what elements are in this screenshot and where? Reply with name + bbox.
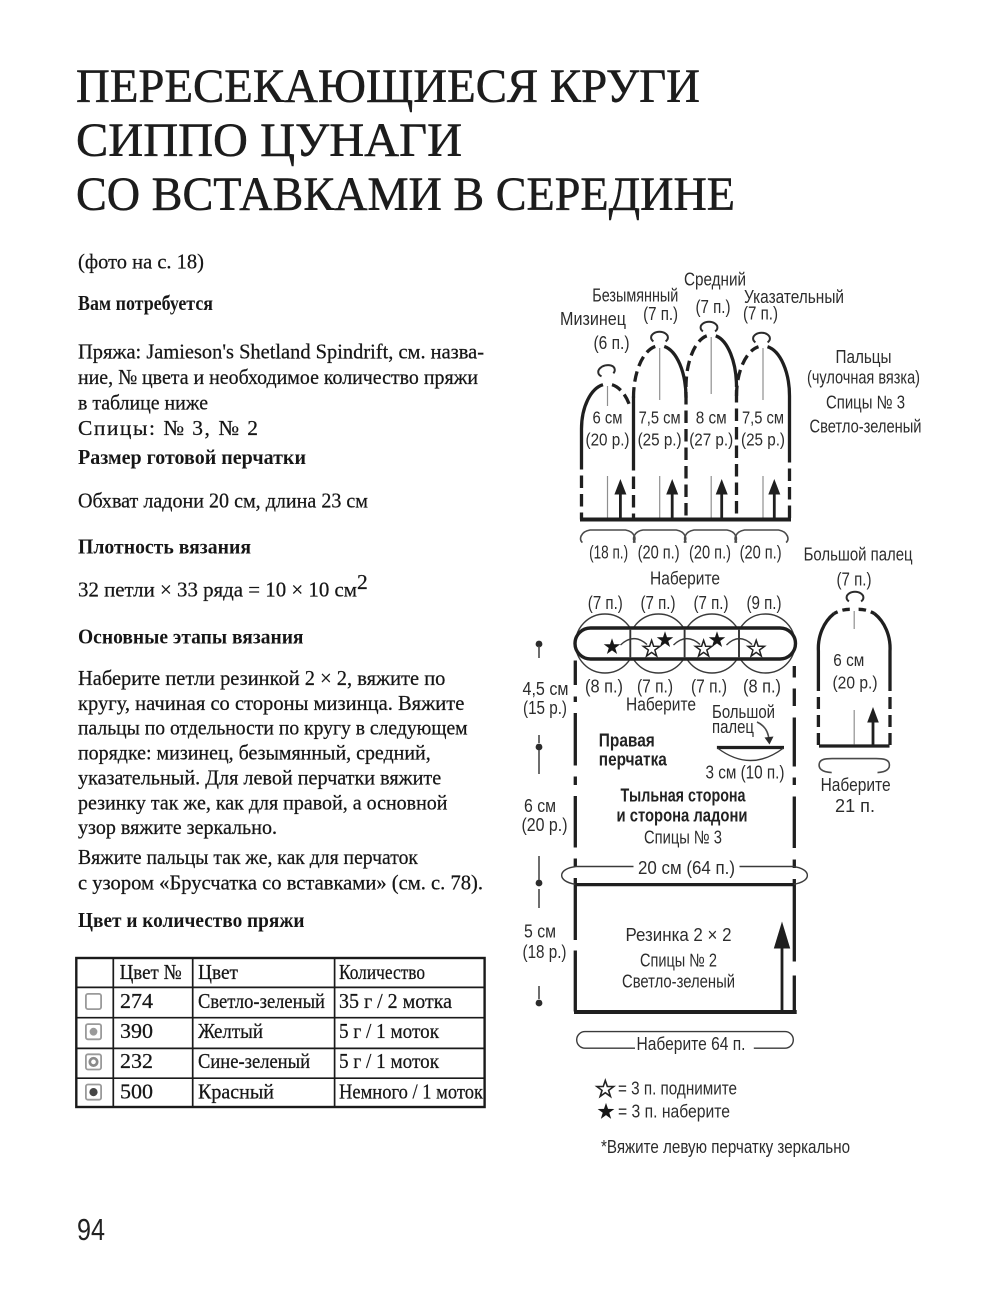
svg-text:(25 р.): (25 р.) — [741, 430, 785, 450]
svg-text:7,5 см: 7,5 см — [742, 408, 784, 428]
svg-text:Большой палец: Большой палец — [804, 544, 913, 565]
svg-text:(20 р.): (20 р.) — [833, 673, 878, 693]
svg-text:Желтый: Желтый — [198, 1019, 263, 1043]
svg-text:Пальцы: Пальцы — [836, 346, 892, 367]
svg-text:7,5 см: 7,5 см — [639, 408, 681, 428]
svg-text:94: 94 — [77, 1212, 105, 1247]
svg-text:6 см: 6 см — [833, 650, 864, 670]
svg-text:указательный. Для левой перчат: указательный. Для левой перчатки вяжите — [78, 765, 441, 789]
svg-text:(20 р.): (20 р.) — [522, 814, 568, 835]
svg-text:перчатка: перчатка — [599, 749, 668, 770]
svg-text:Светло-зеленый: Светло-зеленый — [810, 416, 922, 437]
svg-text:500: 500 — [120, 1079, 153, 1103]
svg-text:Резинка 2 × 2: Резинка 2 × 2 — [626, 924, 732, 945]
svg-text:Спицы № 3: Спицы № 3 — [644, 827, 722, 848]
svg-text:Вам потребуется: Вам потребуется — [78, 291, 213, 315]
svg-text:пальцы по отдельности по кругу: пальцы по отдельности по кругу в следующ… — [78, 716, 468, 740]
svg-text:(8 п.): (8 п.) — [585, 676, 623, 697]
svg-text:палец: палец — [712, 716, 754, 737]
svg-text:Плотность вязания: Плотность вязания — [78, 535, 251, 559]
svg-text:5 г / 1 моток: 5 г / 1 моток — [339, 1019, 439, 1043]
svg-text:4,5 см: 4,5 см — [523, 678, 569, 699]
svg-text:21 п.: 21 п. — [835, 795, 875, 816]
svg-text:(7 п.): (7 п.) — [643, 303, 678, 324]
svg-text:Наберите петли резинкой 2 × 2,: Наберите петли резинкой 2 × 2, вяжите по — [78, 666, 445, 690]
svg-text:ПЕРЕСЕКАЮЩИЕСЯ КРУГИ: ПЕРЕСЕКАЮЩИЕСЯ КРУГИ — [76, 60, 700, 113]
svg-text:Количество: Количество — [339, 960, 425, 984]
svg-text:Светло-зеленый: Светло-зеленый — [622, 971, 735, 992]
svg-text:6 см: 6 см — [524, 795, 556, 816]
svg-text:Цвет: Цвет — [198, 960, 239, 984]
svg-text:Мизинец: Мизинец — [560, 308, 626, 329]
svg-text:Красный: Красный — [198, 1079, 274, 1103]
svg-text:узор вяжите зеркально.: узор вяжите зеркально. — [78, 815, 277, 839]
svg-text:с узором «Брусчатка со вставка: с узором «Брусчатка со вставками» (см. с… — [78, 870, 483, 894]
svg-text:= 3 п. поднимите: = 3 п. поднимите — [618, 1078, 737, 1099]
svg-text:274: 274 — [120, 989, 153, 1013]
svg-text:(7 п.): (7 п.) — [691, 676, 727, 697]
svg-text:35 г / 2 мотка: 35 г / 2 мотка — [339, 989, 452, 1013]
svg-text:Спицы № 2: Спицы № 2 — [640, 950, 717, 971]
svg-text:СО ВСТАВКАМИ В СЕРЕДИНЕ: СО ВСТАВКАМИ В СЕРЕДИНЕ — [76, 168, 735, 221]
svg-text:(чулочная вязка): (чулочная вязка) — [807, 367, 920, 388]
svg-text:резинку так же, как для правой: резинку так же, как для правой, а основн… — [78, 790, 448, 814]
svg-text:Правая: Правая — [599, 730, 655, 751]
svg-text:и сторона ладони: и сторона ладони — [617, 805, 748, 826]
svg-text:Тыльная сторона: Тыльная сторона — [621, 785, 747, 806]
svg-text:Вяжите пальцы так же, как для: Вяжите пальцы так же, как для перчаток — [78, 845, 418, 869]
svg-text:Наберите 64 п.: Наберите 64 п. — [637, 1033, 746, 1054]
svg-text:(фото на с. 18): (фото на с. 18) — [78, 250, 204, 274]
svg-text:5 см: 5 см — [524, 921, 556, 942]
svg-text:5 г / 1 моток: 5 г / 1 моток — [339, 1049, 439, 1073]
svg-text:3 см (10 п.): 3 см (10 п.) — [706, 762, 785, 783]
svg-text:(18 р.): (18 р.) — [523, 941, 567, 962]
svg-text:(7 п.): (7 п.) — [694, 592, 729, 613]
svg-text:(20 р.): (20 р.) — [586, 430, 630, 450]
svg-text:(8 п.): (8 п.) — [743, 676, 781, 697]
svg-text:Наберите: Наберите — [821, 774, 891, 795]
svg-text:Спицы № 3: Спицы № 3 — [826, 392, 905, 413]
svg-text:(7 п.): (7 п.) — [743, 303, 778, 324]
svg-text:Сине-зеленый: Сине-зеленый — [198, 1049, 310, 1073]
svg-text:Пряжа: Jamieson's Shetland Spi: Пряжа: Jamieson's Shetland Spindrift, см… — [78, 340, 484, 364]
svg-text:*Вяжите левую перчатку зеркаль: *Вяжите левую перчатку зеркально — [601, 1136, 850, 1157]
svg-text:20 см (64 п.): 20 см (64 п.) — [638, 857, 735, 878]
svg-text:Наберите: Наберите — [650, 568, 720, 589]
svg-text:32 петли × 33 ряда = 10 × 10 с: 32 петли × 33 ряда = 10 × 10 см — [78, 578, 357, 602]
svg-text:(27 р.): (27 р.) — [689, 430, 733, 450]
svg-text:(15 р.): (15 р.) — [523, 697, 567, 718]
svg-text:Цвет №: Цвет № — [120, 960, 182, 984]
svg-text:2: 2 — [357, 570, 368, 594]
svg-text:порядке: мизинец, безымянный,: порядке: мизинец, безымянный, средний, — [78, 741, 431, 765]
svg-text:Спицы: № 3, № 2: Спицы: № 3, № 2 — [78, 416, 258, 440]
svg-text:(7 п.): (7 п.) — [696, 296, 731, 317]
svg-text:(6 п.): (6 п.) — [594, 332, 630, 353]
svg-text:Немного / 1 моток: Немного / 1 моток — [339, 1079, 483, 1103]
svg-text:Основные этапы вязания: Основные этапы вязания — [78, 625, 304, 649]
svg-text:в таблице ниже: в таблице ниже — [78, 391, 208, 415]
svg-text:ние, № цвета и необходимое кол: ние, № цвета и необходимое количество пр… — [78, 365, 478, 389]
svg-text:= 3 п. наберите: = 3 п. наберите — [618, 1100, 730, 1121]
svg-text:кругу, начиная со стороны мизи: кругу, начиная со стороны мизинца. Вяжит… — [78, 691, 464, 715]
svg-text:(20 п.): (20 п.) — [740, 542, 782, 563]
svg-text:232: 232 — [120, 1049, 153, 1073]
svg-text:6 см: 6 см — [593, 408, 623, 428]
svg-text:8 см: 8 см — [696, 408, 727, 428]
svg-text:Размер готовой перчатки: Размер готовой перчатки — [78, 445, 306, 469]
svg-text:(7 п.): (7 п.) — [837, 569, 872, 590]
svg-text:(25 р.): (25 р.) — [638, 430, 682, 450]
svg-text:Наберите: Наберите — [626, 694, 696, 715]
svg-text:(7 п.): (7 п.) — [641, 592, 676, 613]
svg-text:(18 п.): (18 п.) — [589, 542, 628, 563]
svg-text:(20 п.): (20 п.) — [689, 542, 731, 563]
svg-text:Светло-зеленый: Светло-зеленый — [198, 989, 325, 1013]
svg-text:(9 п.): (9 п.) — [747, 592, 782, 613]
svg-text:Обхват ладони 20 см, длина 23: Обхват ладони 20 см, длина 23 см — [78, 489, 368, 513]
svg-text:(20 п.): (20 п.) — [638, 542, 680, 563]
svg-text:390: 390 — [120, 1019, 153, 1043]
svg-text:Средний: Средний — [684, 269, 746, 290]
svg-text:(7 п.): (7 п.) — [588, 592, 623, 613]
svg-text:Цвет и количество пряжи: Цвет и количество пряжи — [78, 908, 305, 932]
svg-text:СИППО ЦУНАГИ: СИППО ЦУНАГИ — [76, 114, 462, 167]
